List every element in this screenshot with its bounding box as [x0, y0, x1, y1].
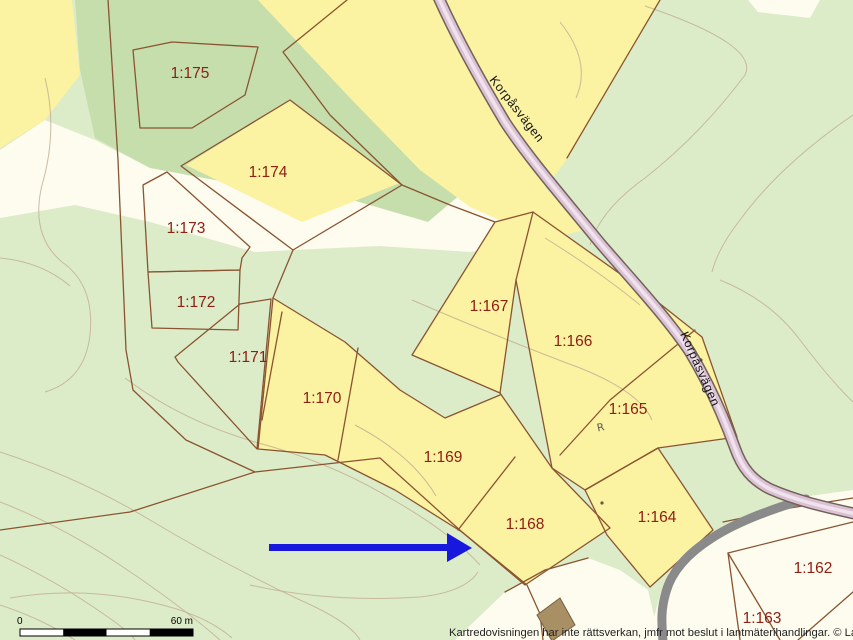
- boundary-point-marker: [600, 501, 603, 504]
- parcel-label-167: 1:167: [470, 298, 509, 315]
- parcel-label-164: 1:164: [638, 509, 677, 526]
- scale-bar-zero: 0: [17, 616, 23, 627]
- parcel-label-170: 1:170: [303, 390, 342, 407]
- copyright-disclaimer: Kartredovisningen har inte rättsverkan, …: [449, 627, 853, 639]
- parcel-label-169: 1:169: [424, 449, 463, 466]
- parcel-label-162: 1:162: [794, 560, 833, 577]
- map-canvas[interactable]: Korpåsvägen Korpåsvägen R 1:175 1:174 1:…: [0, 0, 853, 640]
- parcel-label-163: 1:163: [743, 610, 782, 627]
- map-viewport[interactable]: Korpåsvägen Korpåsvägen R 1:175 1:174 1:…: [0, 0, 853, 640]
- parcel-label-175: 1:175: [171, 65, 210, 82]
- parcel-label-173: 1:173: [167, 220, 206, 237]
- parcel-label-174: 1:174: [249, 164, 288, 181]
- parcel-label-171: 1:171: [229, 349, 268, 366]
- parcel-label-165: 1:165: [609, 401, 648, 418]
- parcel-label-168: 1:168: [506, 516, 545, 533]
- parcel-label-166: 1:166: [554, 333, 593, 350]
- parcel-label-172: 1:172: [177, 294, 216, 311]
- scale-bar-distance: 60 m: [171, 616, 193, 627]
